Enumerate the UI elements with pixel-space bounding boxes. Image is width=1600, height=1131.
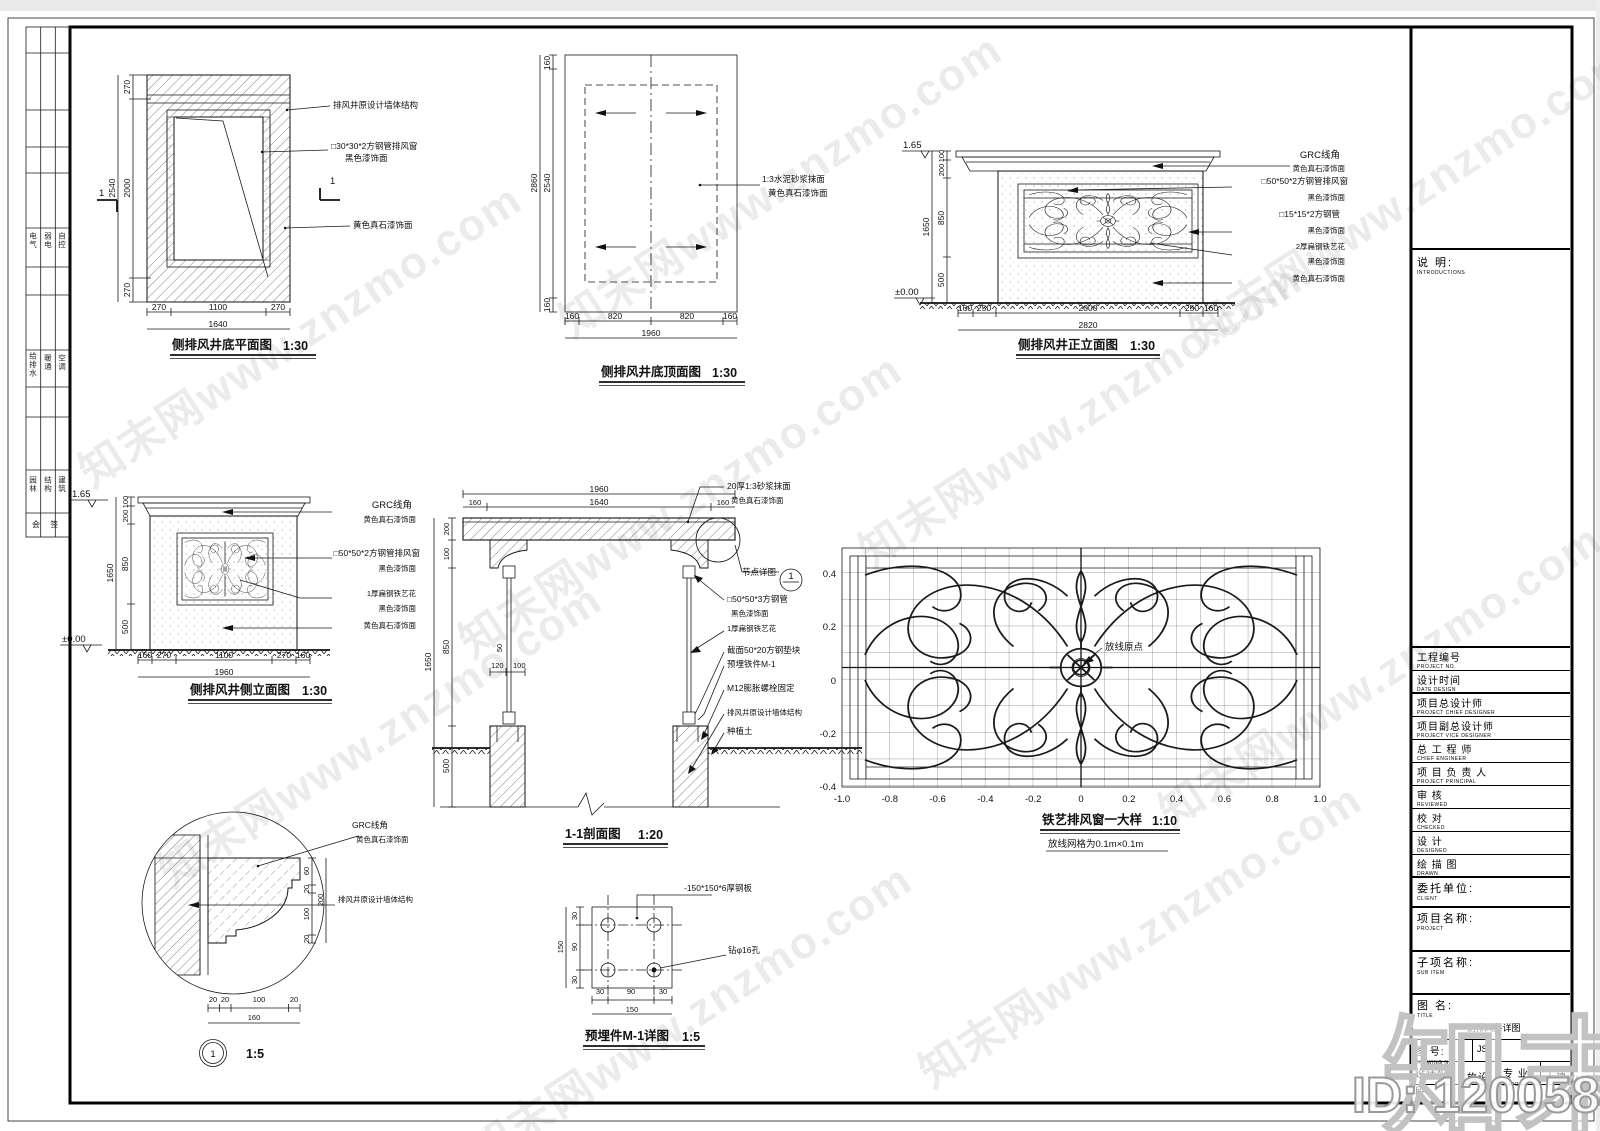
dim-label: 20 (209, 995, 217, 1004)
dim-label: 30 (659, 987, 667, 996)
dim-label: 30 (570, 912, 579, 920)
project-label-en: PROJECT (1417, 926, 1570, 932)
row-label-en: CHIEF ENGINEER (1417, 756, 1570, 762)
major-label-cn: 专 业: (1503, 1069, 1533, 1080)
dim-label: 150 (626, 1005, 639, 1014)
dim-label: 1960 (215, 667, 234, 677)
callout-label: 预埋铁件M-1 (727, 659, 776, 669)
figure-title: 侧排风井正立面图 (1018, 337, 1118, 352)
dim-label: 2820 (1079, 320, 1098, 330)
strip-cell: 电气 (29, 232, 37, 249)
dim-label: 270 (271, 302, 285, 312)
dim-label: 160 (542, 56, 552, 70)
client-box: 委托单位: CLIENT (1411, 878, 1570, 908)
dim-label: 100 (442, 548, 451, 561)
dim-label: 270 (277, 650, 291, 660)
callout-label: □50*50*2方钢管排风窗 (334, 548, 420, 558)
dim-label: 50 (495, 644, 504, 652)
row-label-cn: 审 核 (1417, 787, 1570, 802)
drawing-title-box: 图 名: TITLE 侧排风井详图 (1411, 995, 1570, 1040)
row-label-cn: 项 目 负 责 人 (1417, 764, 1570, 779)
signature-strip (26, 27, 70, 537)
dim-label: 100 (513, 661, 526, 670)
dim-label: 160 (469, 498, 482, 507)
drawing-no-value: JS- (1477, 1044, 1491, 1054)
drawing-no-row: 图 号: DRAWING NO. JS- (1411, 1040, 1570, 1062)
dim-label: 1960 (642, 328, 661, 338)
callout-label: 黑色漆饰面 (345, 153, 388, 163)
dim-label: 160 (1204, 303, 1218, 313)
axis-tick: -0.2 (820, 729, 836, 740)
axis-tick: -1.0 (834, 794, 850, 805)
dim-label: 250 (1185, 303, 1199, 313)
strip-cell: 空调 (58, 354, 66, 371)
callout-label: 20厚1:3砂浆抹面 (727, 481, 791, 491)
phase-value: 施设 (1467, 1073, 1489, 1084)
row-label-en: DESIGNED (1417, 848, 1570, 854)
dim-label: 200 (121, 510, 130, 523)
figure-scale: 1:30 (1130, 339, 1155, 353)
callout-label: 排风井原设计墙体结构 (338, 894, 413, 904)
dim-label: 90 (570, 943, 579, 951)
level-label: ±0.00 (62, 634, 86, 645)
dim-label: 150 (556, 941, 565, 954)
axis-tick: 0.6 (1218, 794, 1231, 805)
dim-label: 2860 (529, 173, 539, 192)
figure-scale: 1:5 (682, 1030, 700, 1044)
titleblock-row: 项 目 负 责 人PROJECT PRINCIPAL (1411, 763, 1570, 786)
section-number: 1 (99, 188, 104, 199)
dim-label: 1960 (590, 484, 609, 494)
dim-label: 160 (542, 298, 552, 312)
callout-label: 黄色真石漆饰面 (1293, 163, 1346, 173)
axis-tick: -0.4 (820, 782, 836, 793)
titleblock-row: 绘 描 图DRAWN (1411, 855, 1570, 878)
row-label-en: PROJECT PRINCIPAL (1417, 779, 1570, 785)
embed-plate-detail: -150*150*6厚钢板 钻φ16孔 30 90 30 150 30 90 3… (556, 883, 760, 1050)
row-label-cn: 工程编号 (1417, 649, 1570, 664)
callout-label: 1厚扁钢铁艺花 (367, 588, 417, 598)
dim-label: 850 (441, 640, 451, 654)
dim-label: 1650 (105, 563, 115, 582)
dim-label: 820 (608, 311, 622, 321)
notes-label-cn: 说 明: (1417, 254, 1570, 270)
callout-label: 黑色漆饰面 (731, 608, 769, 618)
row-label-cn: 设计时间 (1417, 672, 1570, 687)
callout-label: 黄色真石漆饰面 (353, 220, 413, 230)
callout-label: 黄色真石漆饰面 (364, 620, 417, 630)
dim-label: 270 (157, 650, 171, 660)
axis-tick: 0.4 (1170, 794, 1183, 805)
titleblock-row: 总 工 程 师CHIEF ENGINEER (1411, 740, 1570, 763)
figure-subtitle: 放线网格为0.1m×0.1m (1048, 838, 1143, 850)
phase-major-row: 设计阶段: PHASE 施设 专 业: MAJOR 土建 (1411, 1062, 1570, 1085)
row-label-en: PROJECT CHIEF DESIGNER (1417, 710, 1570, 716)
callout-label: 黄色真石漆饰面 (1293, 273, 1346, 283)
cornice-node-detail: GRC线角 黄色真石漆饰面 排风井原设计墙体结构 60 20 100 20 20… (140, 812, 413, 1067)
row-label-cn: 项目副总设计师 (1417, 718, 1570, 733)
figure-title: 侧排风井侧立面图 (190, 682, 290, 697)
callout-label: 黄色真石漆饰面 (364, 514, 417, 524)
dim-label: 1100 (209, 302, 228, 312)
subitem-label-en: SUB ITEM (1417, 970, 1570, 976)
section-mark-right (320, 188, 340, 200)
callout-label: 2厚扁钢铁艺花 (1296, 241, 1346, 251)
dim-label: 1650 (423, 652, 433, 671)
titleblock-row: 项目副总设计师PROJECT VICE DESIGNER (1411, 717, 1570, 740)
dim-label: 200 (442, 523, 451, 536)
dim-label: 100 (302, 908, 311, 921)
dim-label: 1640 (209, 319, 228, 329)
callout-label: □50*50*3方钢管 (727, 594, 788, 604)
axis-tick: -0.4 (977, 794, 993, 805)
axis-tick: 0.4 (823, 569, 836, 580)
section-number: 1 (330, 176, 335, 187)
callout-label: 1:3水泥砂浆抹面 (762, 174, 825, 184)
dim-label: 2540 (107, 178, 117, 197)
dim-label: 160 (565, 311, 579, 321)
dim-label: 20 (302, 885, 311, 893)
dim-label: 100 (121, 496, 130, 509)
strip-cell: 弱电 (44, 232, 52, 249)
callout-label: 1厚扁钢铁艺花 (727, 623, 777, 633)
dim-label: 160 (717, 498, 730, 507)
level-label: 1.65 (903, 140, 922, 151)
dim-label: 100 (253, 995, 266, 1004)
axis-tick: 0.2 (1122, 794, 1135, 805)
row-label-en: DRAWN (1417, 871, 1570, 877)
figure-scale: 1:30 (712, 366, 737, 380)
callout-label: 排风井原设计墙体结构 (333, 100, 418, 110)
figure-scale: 1:20 (638, 828, 663, 842)
row-label-en: REVIEWED (1417, 802, 1570, 808)
dim-label: 160 (138, 650, 152, 660)
side-elevation: 1.65 ±0.00 100 200 850 500 1650 160 270 … (60, 489, 420, 704)
figure-scale: 1:10 (1152, 814, 1177, 828)
axis-tick: 0.2 (823, 622, 836, 633)
dim-label: 20 (221, 995, 229, 1004)
callout-label: GRC线角 (372, 499, 412, 511)
axis-tick: 0 (1078, 794, 1083, 805)
callout-label: 黄色真石漆饰面 (768, 188, 828, 198)
front-elevation: 1.65 ±0.00 100 200 850 500 1650 160 250 … (894, 140, 1348, 359)
dim-label: 160 (248, 1013, 261, 1022)
section-mark-left (97, 200, 117, 212)
dim-label: 30 (570, 976, 579, 984)
title-block: 说 明: INTRODUCTIONS 工程编号PROJECT NO. 设计时间D… (1411, 27, 1570, 1103)
axis-tick: -0.6 (929, 794, 945, 805)
dim-label: 120 (491, 661, 504, 670)
dim-label: 100 (937, 150, 946, 163)
callout-label: □15*15*2方钢管 (1279, 209, 1340, 219)
callout-label: -150*150*6厚钢板 (684, 883, 753, 893)
row-label-en: PROJECT NO. (1417, 664, 1570, 670)
dim-label: 200 (937, 164, 946, 177)
level-label: ±0.00 (895, 287, 919, 298)
dim-label: 820 (680, 311, 694, 321)
callout-label: 黑色漆饰面 (379, 563, 417, 573)
strip-cell-countersign: 会 签 (32, 519, 62, 530)
drawing-title-value: 侧排风井详图 (1417, 1021, 1570, 1034)
dim-label: 500 (441, 759, 451, 773)
callout-label: 黄色真石漆饰面 (356, 834, 409, 844)
row-label-en: DATE DESIGN (1417, 687, 1570, 693)
titleblock-row: 设计时间DATE DESIGN (1411, 671, 1570, 694)
scale-date-row (1411, 1085, 1570, 1103)
strip-cell: 给排水 (29, 352, 37, 378)
callout-label: 钻φ16孔 (728, 945, 760, 955)
figure-scale: 1:30 (302, 684, 327, 698)
row-label-cn: 总 工 程 师 (1417, 741, 1570, 756)
callout-label: 种植土 (727, 726, 753, 736)
dim-label: 20 (290, 995, 298, 1004)
drawing-title-label-en: TITLE (1417, 1013, 1570, 1019)
client-label-en: CLIENT (1417, 896, 1570, 902)
callout-label: 截面50*20方钢垫块 (727, 645, 801, 655)
titleblock-row: 项目总设计师PROJECT CHIEF DESIGNER (1411, 694, 1570, 717)
ironwork-grille-detail: 放线原点 0.4 0.2 0 -0.2 -0.4 -1.0 -0.8 -0.6 … (820, 548, 1327, 851)
row-label-cn: 设 计 (1417, 833, 1570, 848)
axis-tick: 0 (831, 676, 836, 687)
axis-tick: -0.8 (882, 794, 898, 805)
titleblock-row: 审 核REVIEWED (1411, 786, 1570, 809)
figure-scale: 1:30 (283, 339, 308, 353)
dim-label: 30 (596, 987, 604, 996)
notes-label-en: INTRODUCTIONS (1417, 270, 1570, 276)
dim-label: 1640 (590, 497, 609, 507)
row-label-cn: 绘 描 图 (1417, 856, 1570, 871)
dim-label: 500 (936, 273, 946, 287)
callout-label: 黑色漆饰面 (1308, 256, 1346, 266)
drawing-title-label-cn: 图 名: (1417, 997, 1570, 1013)
subitem-box: 子项名称: SUB ITEM (1411, 952, 1570, 995)
callout-label: 排风井原设计墙体结构 (727, 707, 802, 717)
cad-sheet-page: { "wm": { "tile": "知末网www.znzmo.com", "l… (0, 0, 1600, 1131)
strip-cell: 结构 (44, 476, 52, 493)
axis-tick: 0.8 (1266, 794, 1279, 805)
strip-cell: 建筑 (58, 476, 66, 493)
dim-label: 850 (120, 557, 130, 571)
dim-label: 270 (152, 302, 166, 312)
figure-title: 侧排风井底顶面图 (601, 364, 701, 379)
dim-label: 160 (296, 650, 310, 660)
callout-label: □50*50*2方钢管排风窗 (1262, 176, 1348, 186)
titleblock-notes-box: 说 明: INTRODUCTIONS (1411, 250, 1570, 648)
callout-label: M12膨胀螺栓固定 (727, 683, 795, 693)
dim-label: 20 (302, 935, 311, 943)
level-label: 1.65 (72, 489, 91, 500)
strip-cell: 园林 (29, 476, 37, 493)
dim-label: 270 (122, 80, 132, 94)
detail-number: 1 (210, 1049, 215, 1060)
dim-label: 2540 (542, 173, 552, 192)
callout-label: 黄色真石漆饰面 (731, 495, 784, 505)
dim-label: 1100 (215, 650, 234, 660)
section-1-1: 1960 1640 160 160 200 100 850 500 1650 5… (423, 481, 862, 848)
figure-title: 铁艺排风窗一大样 (1042, 812, 1143, 827)
dim-label: 60 (302, 867, 311, 875)
top-view: 160 2540 160 2860 160 820 820 160 1960 1… (529, 55, 828, 386)
dim-label: 250 (977, 303, 991, 313)
dim-label: 160 (723, 311, 737, 321)
axis-tick: -0.2 (1025, 794, 1041, 805)
callout-label: □30*30*2方钢管排风窗 (331, 141, 417, 151)
dim-label: 270 (122, 283, 132, 297)
titleblock-logo-box (1411, 27, 1570, 250)
callout-label: 黑色漆饰面 (1308, 225, 1346, 235)
node-ref-number: 1 (788, 571, 793, 582)
figure-title: 1-1剖面图 (565, 826, 621, 841)
row-label-en: PROJECT VICE DESIGNER (1417, 733, 1570, 739)
figure-scale: 1:5 (246, 1047, 264, 1061)
project-label-cn: 项目名称: (1417, 910, 1570, 926)
subitem-label-cn: 子项名称: (1417, 954, 1570, 970)
callout-label: 黑色漆饰面 (379, 603, 417, 613)
titleblock-row: 校 对CHECKED (1411, 809, 1570, 832)
callout-label: 黑色漆饰面 (1308, 192, 1346, 202)
row-label-en: CHECKED (1417, 825, 1570, 831)
titleblock-row: 工程编号PROJECT NO. (1411, 648, 1570, 671)
strip-cell: 暖通 (44, 354, 52, 371)
axis-tick: 1.0 (1313, 794, 1326, 805)
drawing-canvas: 1 1 270 2000 270 2540 270 1100 270 1640 … (0, 0, 1600, 1131)
figure-title: 侧排风井底平面图 (172, 337, 272, 352)
dim-label: 90 (627, 987, 635, 996)
dim-label: 2000 (1079, 303, 1098, 313)
dim-label: 200 (316, 894, 325, 907)
dim-label: 2000 (122, 178, 132, 197)
drawing-no-label-cn: 图 号: (1415, 1047, 1445, 1058)
dim-label: 1650 (921, 217, 931, 236)
dim-label: 160 (958, 303, 972, 313)
plan-view: 1 1 270 2000 270 2540 270 1100 270 1640 … (97, 75, 418, 359)
dim-label: 850 (936, 211, 946, 225)
row-label-cn: 校 对 (1417, 810, 1570, 825)
callout-label: GRC线角 (1300, 149, 1340, 161)
row-label-cn: 项目总设计师 (1417, 695, 1570, 710)
major-value: 土建 (1545, 1073, 1567, 1084)
callout-label: GRC线角 (352, 820, 388, 830)
project-box: 项目名称: PROJECT (1411, 908, 1570, 952)
dim-label: 500 (120, 620, 130, 634)
origin-label: 放线原点 (1105, 641, 1144, 653)
figure-title: 预埋件M-1详图 (585, 1028, 669, 1043)
client-label-cn: 委托单位: (1417, 880, 1570, 896)
strip-cell: 自控 (58, 232, 66, 249)
titleblock-row: 设 计DESIGNED (1411, 832, 1570, 855)
